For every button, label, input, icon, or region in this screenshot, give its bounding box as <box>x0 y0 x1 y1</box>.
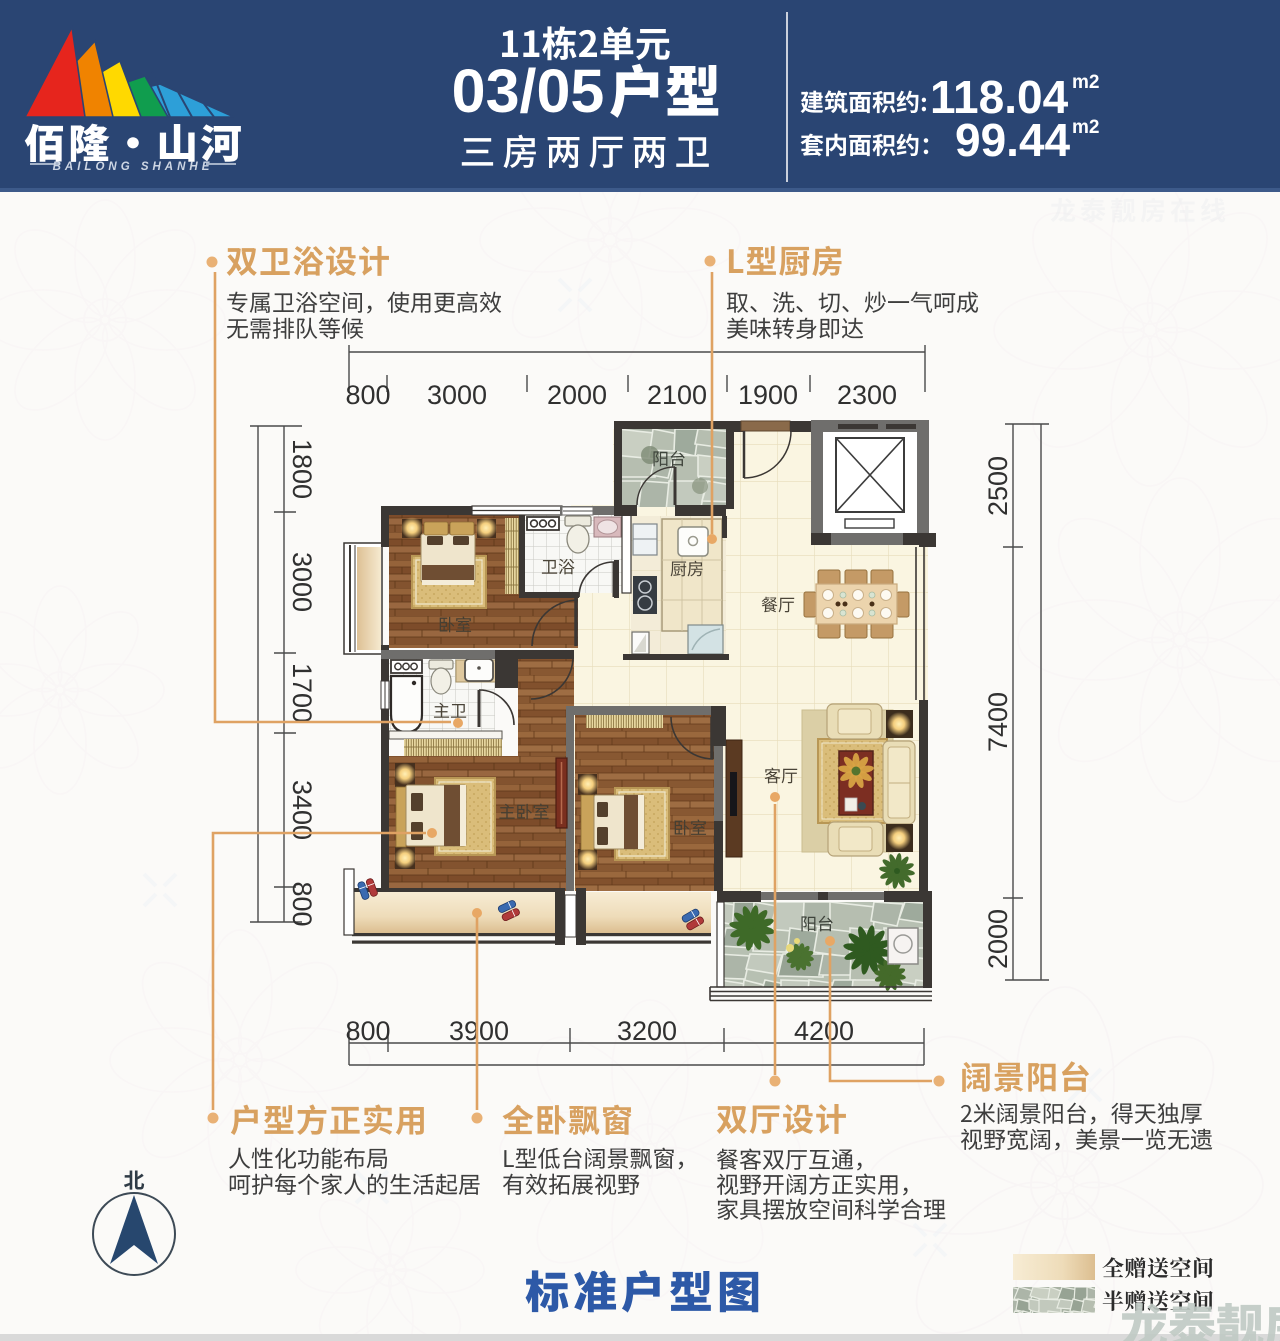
svg-text:m2: m2 <box>1072 117 1099 138</box>
svg-text:3200: 3200 <box>617 1016 677 1046</box>
svg-text:m2: m2 <box>1072 72 1099 93</box>
svg-text:800: 800 <box>345 380 390 410</box>
svg-text:1700: 1700 <box>287 663 317 723</box>
svg-text:3000: 3000 <box>287 552 317 612</box>
svg-text:2300: 2300 <box>837 380 897 410</box>
svg-text:1900: 1900 <box>738 380 798 410</box>
svg-text:7400: 7400 <box>983 692 1013 752</box>
svg-text:3000: 3000 <box>427 380 487 410</box>
svg-text:2500: 2500 <box>983 456 1013 516</box>
svg-text:03/05: 03/05 <box>452 57 605 125</box>
svg-text:2100: 2100 <box>647 380 707 410</box>
svg-text:BAILONG SHANHE: BAILONG SHANHE <box>53 161 214 173</box>
svg-text:3400: 3400 <box>287 780 317 840</box>
svg-text:4200: 4200 <box>794 1016 854 1046</box>
svg-text:1800: 1800 <box>287 439 317 499</box>
svg-text:800: 800 <box>345 1016 390 1046</box>
svg-text:3900: 3900 <box>449 1016 509 1046</box>
svg-text:2000: 2000 <box>547 380 607 410</box>
svg-text:99.44: 99.44 <box>955 114 1071 166</box>
svg-text:800: 800 <box>287 881 317 926</box>
svg-text:2000: 2000 <box>983 909 1013 969</box>
